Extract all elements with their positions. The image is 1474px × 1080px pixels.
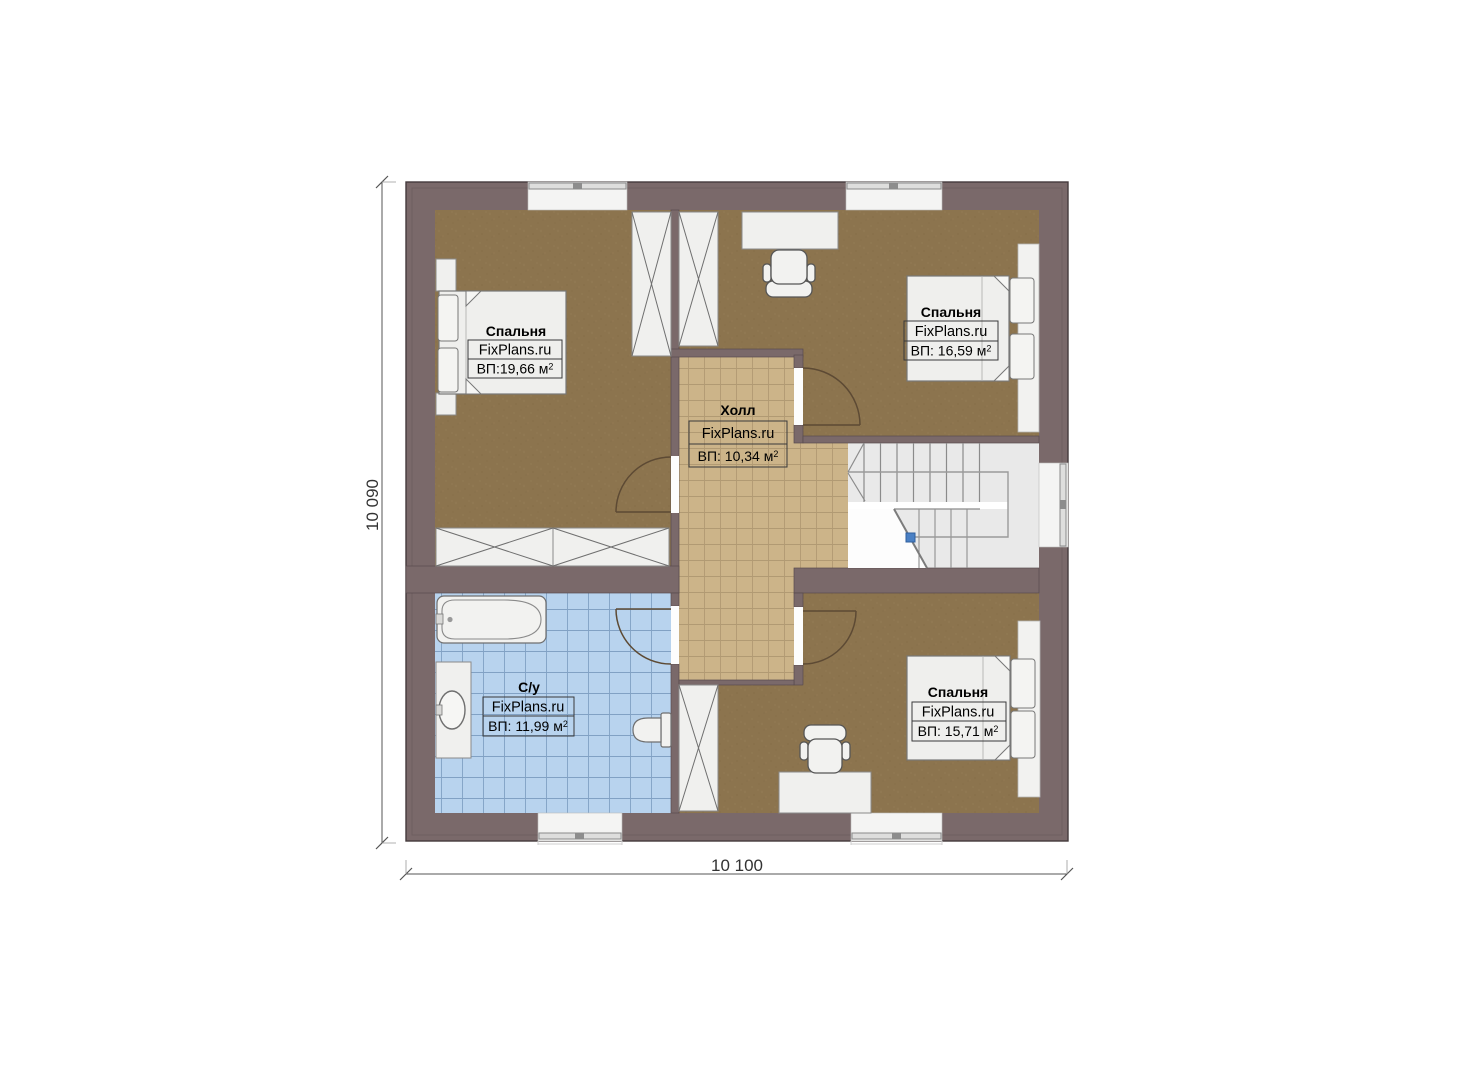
svg-text:Холл: Холл <box>720 402 755 418</box>
svg-text:FixPlans.ru: FixPlans.ru <box>479 343 552 359</box>
svg-text:ВП: 11,99 м2: ВП: 11,99 м2 <box>488 718 568 734</box>
svg-text:ВП: 15,71 м2: ВП: 15,71 м2 <box>918 723 999 739</box>
svg-text:FixPlans.ru: FixPlans.ru <box>922 705 995 721</box>
svg-text:FixPlans.ru: FixPlans.ru <box>915 324 988 340</box>
svg-text:10 090: 10 090 <box>363 479 382 531</box>
svg-text:С/у: С/у <box>518 679 540 695</box>
svg-text:10 100: 10 100 <box>711 856 763 875</box>
svg-text:Спальня: Спальня <box>928 684 988 700</box>
svg-text:FixPlans.ru: FixPlans.ru <box>702 426 775 442</box>
svg-text:FixPlans.ru: FixPlans.ru <box>492 700 565 716</box>
svg-text:Спальня: Спальня <box>921 304 981 320</box>
svg-text:Спальня: Спальня <box>486 323 546 339</box>
svg-text:ВП: 10,34 м2: ВП: 10,34 м2 <box>698 448 779 464</box>
svg-text:ВП: 16,59 м2: ВП: 16,59 м2 <box>911 343 992 359</box>
svg-text:ВП:19,66 м2: ВП:19,66 м2 <box>477 361 554 377</box>
